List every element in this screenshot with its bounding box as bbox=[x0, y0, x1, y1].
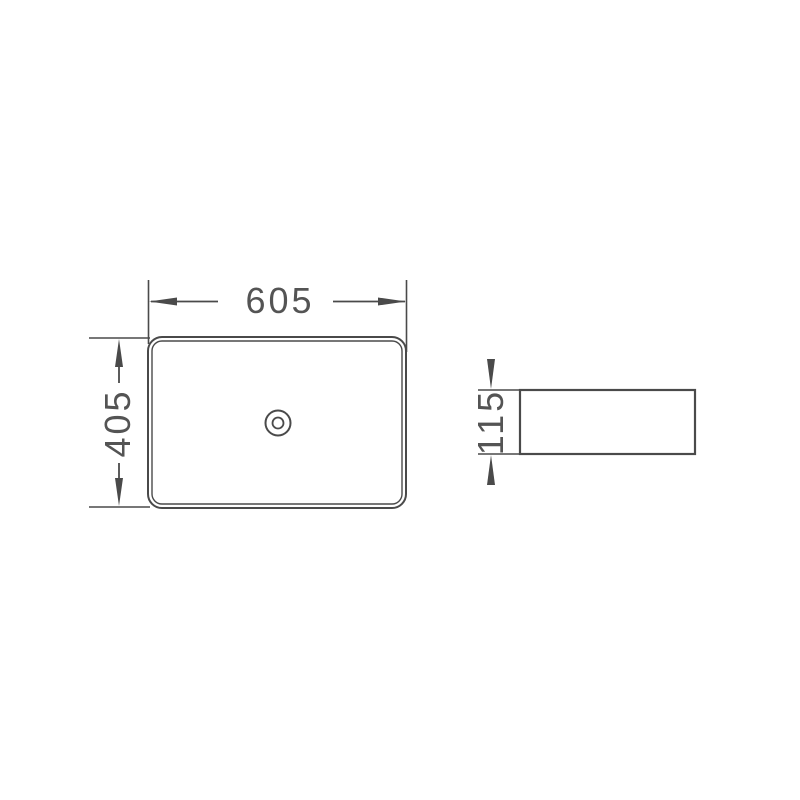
depth-dimension-value: 405 bbox=[100, 388, 136, 457]
top-view-inner-rim-outline bbox=[152, 341, 402, 504]
width-arrow-right bbox=[378, 298, 406, 306]
width-dimension-value: 605 bbox=[245, 283, 314, 319]
height-arrow-top-outside bbox=[487, 359, 495, 389]
drain-outer-circle bbox=[266, 411, 291, 436]
height-dimension-value: 115 bbox=[473, 389, 509, 455]
drain-inner-circle bbox=[273, 418, 284, 429]
depth-arrow-up bbox=[115, 339, 123, 367]
technical-drawing-canvas: 605 405 115 bbox=[0, 0, 800, 800]
width-arrow-left bbox=[149, 298, 177, 306]
top-view-outer-outline bbox=[148, 337, 406, 508]
dimension-arrowheads bbox=[115, 298, 495, 507]
depth-arrow-down bbox=[115, 478, 123, 506]
side-view-outline bbox=[520, 390, 695, 454]
drawing-lines bbox=[89, 280, 695, 508]
height-arrow-bottom-outside bbox=[487, 455, 495, 485]
